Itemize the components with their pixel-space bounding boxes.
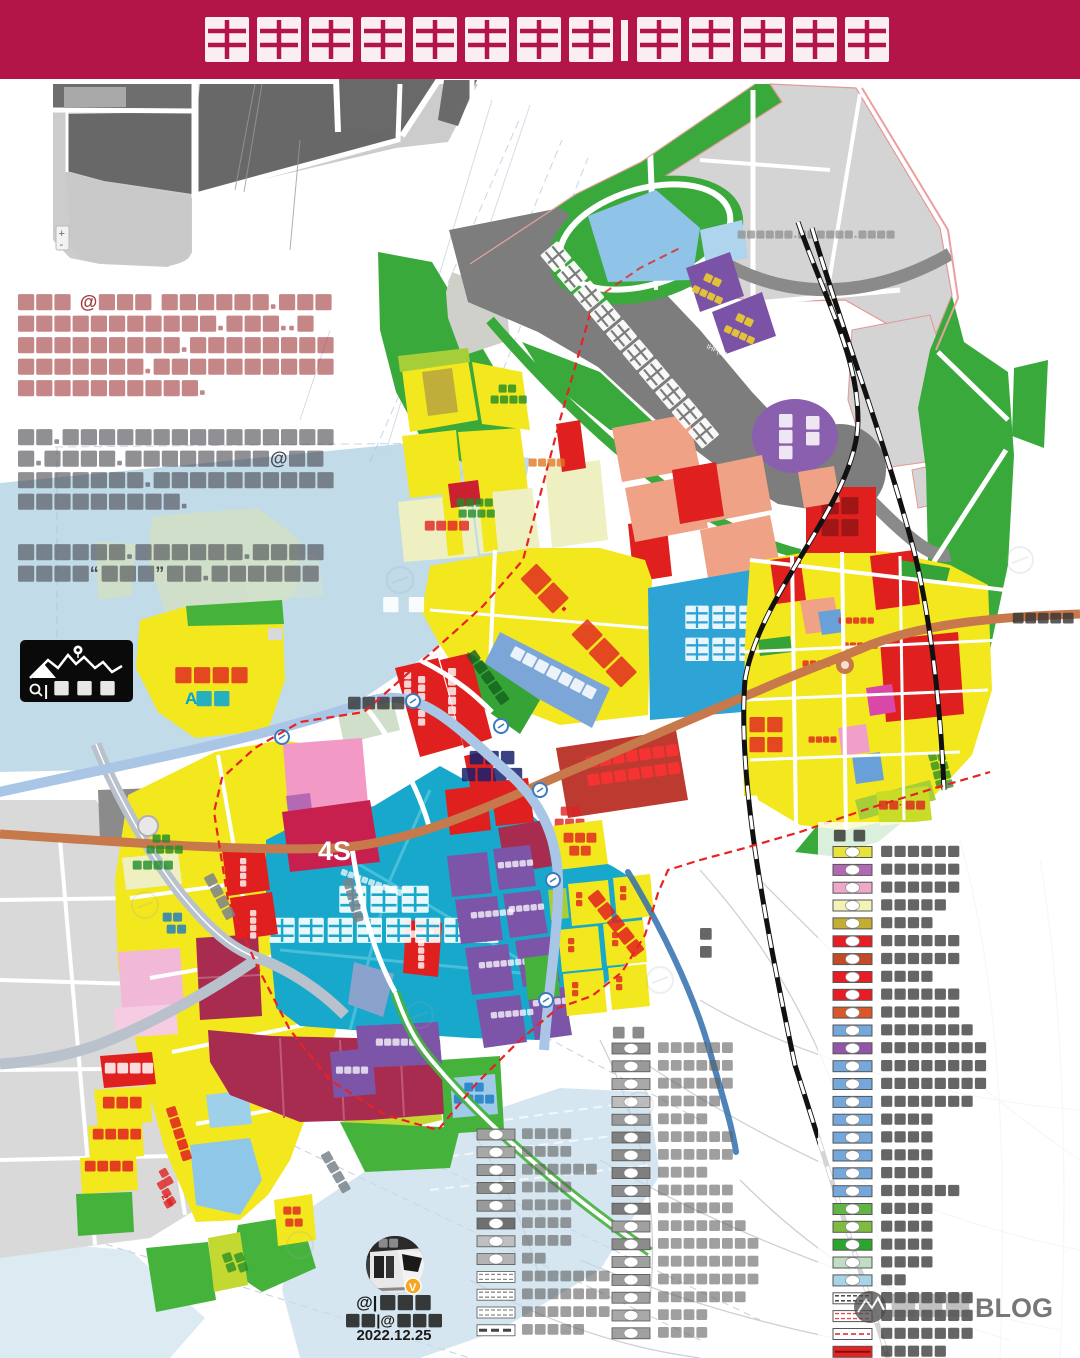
svg-text:2022.12.25: 2022.12.25 [356,1327,431,1344]
svg-text:A: A [185,689,197,708]
svg-text:4S: 4S [318,836,351,866]
svg-text:·: · [899,800,902,811]
svg-text:BLOG: BLOG [975,1293,1053,1323]
svg-text:“: “ [90,563,99,583]
svg-text:@: @ [80,292,98,312]
svg-text:@: @ [270,448,288,468]
svg-text:-: - [60,239,64,251]
svg-text:”: ” [155,563,164,583]
svg-text:|: | [44,683,48,700]
svg-text:V: V [409,1282,417,1294]
svg-text:@|: @| [356,1293,377,1312]
